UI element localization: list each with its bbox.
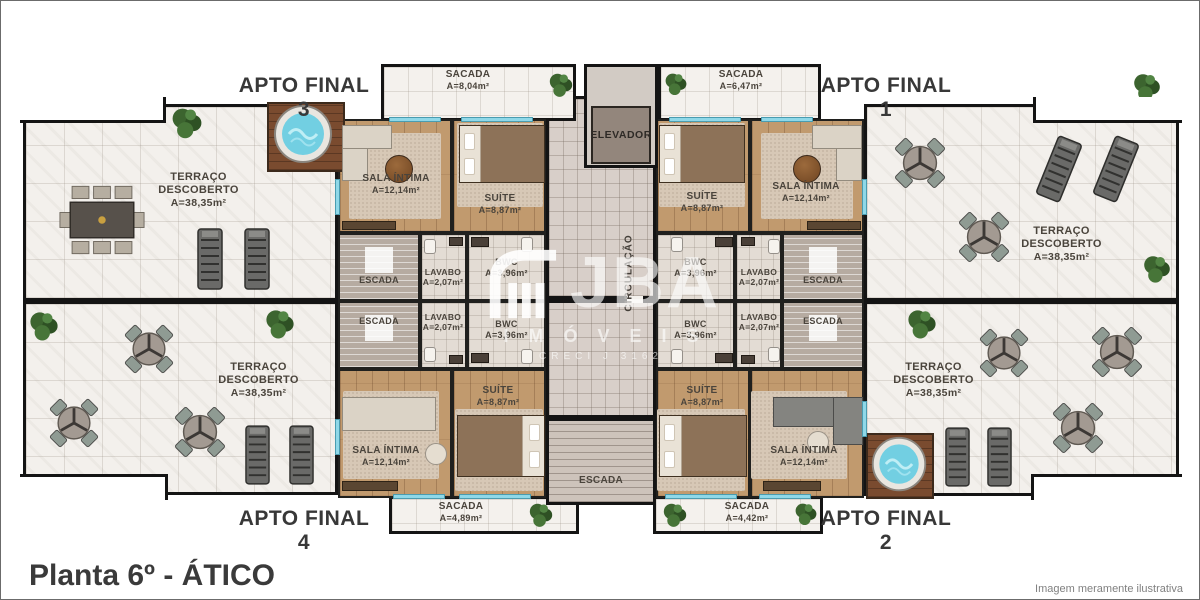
sacada-label-apto1: SACADAA=6,47m² <box>689 69 793 92</box>
terrace-step-apto4 <box>20 474 168 500</box>
window <box>761 117 813 122</box>
room-escada-apto2 <box>782 301 864 369</box>
vanity <box>715 353 733 363</box>
vanity <box>715 237 733 247</box>
central-stairs <box>546 418 656 505</box>
window <box>335 179 340 215</box>
disclaimer-text: Imagem meramente ilustrativa <box>1035 583 1183 595</box>
sofa <box>342 397 436 431</box>
plant <box>1141 253 1173 285</box>
bed <box>659 125 745 183</box>
sink <box>741 237 755 246</box>
terraco-label-apto4: TERRAÇO DESCOBERTOA=38,35m² <box>191 361 326 400</box>
suite-label-apto4: SUÍTEA=8,87m² <box>454 385 542 408</box>
terrace-step-apto3 <box>20 97 166 123</box>
lavabo-label-apto4: LAVABOA=2,07m² <box>412 312 474 332</box>
plant <box>527 501 555 529</box>
vanity <box>471 353 489 363</box>
elevator: ELEVADOR <box>591 106 651 164</box>
suite-label-apto1: SUÍTEA=8,87m² <box>658 191 746 214</box>
tv-console <box>763 481 821 491</box>
tv-console <box>342 481 398 491</box>
floor-plan-canvas: ELEVADOR CIRCULAÇÃO ESCADA <box>0 0 1200 600</box>
page-title: Planta 6º - ÁTICO <box>29 559 275 593</box>
toilet <box>521 349 533 364</box>
lounger <box>197 227 223 291</box>
bwc-label-apto2: BWCA=3,96m² <box>656 319 735 341</box>
window <box>335 419 340 455</box>
bed <box>457 415 545 477</box>
terrace-step-apto1 <box>1033 97 1182 123</box>
toilet <box>521 237 533 252</box>
bed <box>459 125 545 183</box>
terraco-label-apto3: TERRAÇO DESCOBERTOA=38,35m² <box>131 171 266 210</box>
apto3-label: APTO FINAL 3 <box>231 74 377 122</box>
apto2-label: APTO FINAL 2 <box>813 507 959 555</box>
plant <box>663 71 689 97</box>
tv-console <box>342 221 396 230</box>
sala-label-apto4: SALA ÍNTIMAA=12,14m² <box>336 445 436 468</box>
window <box>461 117 533 122</box>
bistro-table <box>1049 399 1107 457</box>
sacada-label-apto4: SACADAA=4,89m² <box>409 501 513 524</box>
lounger <box>289 423 314 487</box>
plant <box>27 309 61 343</box>
lavabo-label-apto3: LAVABOA=2,07m² <box>412 267 474 287</box>
lavabo-label-apto2: LAVABOA=2,07m² <box>728 312 790 332</box>
apto1-label: APTO FINAL 1 <box>813 74 959 122</box>
terraco-label-apto2: TERRAÇO DESCOBERTOA=38,35m² <box>866 361 1001 400</box>
terraco-label-apto1: TERRAÇO DESCOBERTOA=38,35m² <box>994 225 1129 264</box>
plant <box>263 307 297 341</box>
sacada-label-apto2: SACADAA=4,42m² <box>695 501 799 524</box>
sacada-label-apto3: SACADAA=8,04m² <box>416 69 520 92</box>
tv-console <box>807 221 861 230</box>
sink <box>449 355 463 364</box>
central-stairs-label: ESCADA <box>546 475 656 487</box>
plant <box>661 501 689 529</box>
lounger <box>987 425 1012 489</box>
toilet <box>671 237 683 252</box>
escada-label-apto4: ESCADA <box>338 316 420 327</box>
lounger <box>945 425 970 489</box>
toilet <box>424 239 436 254</box>
sala-label-apto2: SALA ÍNTIMAA=12,14m² <box>754 445 854 468</box>
toilet <box>768 347 780 362</box>
apto4-label: APTO FINAL 4 <box>231 507 377 555</box>
room-escada-apto3 <box>338 233 420 301</box>
suite-label-apto2: SUÍTEA=8,87m² <box>658 385 746 408</box>
escada-label-apto1: ESCADA <box>782 275 864 286</box>
sala-label-apto1: SALA ÍNTIMAA=12,14m² <box>756 181 856 204</box>
window <box>759 494 811 499</box>
bwc-label-apto4: BWCA=3,96m² <box>467 319 546 341</box>
bistro-table <box>46 395 102 451</box>
toilet <box>671 349 683 364</box>
escada-label-apto3: ESCADA <box>338 275 420 286</box>
sink <box>741 355 755 364</box>
bwc-label-apto3: BWCA=3,96m² <box>467 257 546 279</box>
toilet <box>768 239 780 254</box>
bistro-table <box>891 134 949 192</box>
bistro-table <box>171 403 229 461</box>
window <box>862 401 867 437</box>
sala-label-apto3: SALA ÍNTIMAA=12,14m² <box>346 173 446 196</box>
window <box>665 494 737 499</box>
hot-tub <box>869 435 929 493</box>
plant <box>905 307 939 341</box>
coffee-table <box>793 155 821 183</box>
lounger <box>245 423 270 487</box>
bistro-table <box>121 321 177 377</box>
sofa <box>342 125 392 149</box>
lounger <box>244 227 270 291</box>
bistro-table <box>1088 323 1146 381</box>
window <box>862 179 867 215</box>
window <box>393 494 445 499</box>
vanity <box>471 237 489 247</box>
plant <box>169 105 205 141</box>
sofa <box>833 397 863 445</box>
escada-label-apto2: ESCADA <box>782 316 864 327</box>
elevator-label: ELEVADOR <box>590 129 652 141</box>
bed <box>659 415 747 477</box>
terrace-step-apto2 <box>1031 474 1182 500</box>
window <box>669 117 741 122</box>
room-escada-apto4 <box>338 301 420 369</box>
toilet <box>424 347 436 362</box>
room-escada-apto1 <box>782 233 864 301</box>
bwc-label-apto1: BWCA=3,96m² <box>656 257 735 279</box>
window <box>459 494 531 499</box>
plant <box>547 71 575 99</box>
window <box>389 117 441 122</box>
suite-label-apto3: SUÍTEA=8,87m² <box>456 193 544 216</box>
lavabo-label-apto1: LAVABOA=2,07m² <box>728 267 790 287</box>
sofa <box>812 125 862 149</box>
circulation-label: CIRCULAÇÃO <box>624 234 635 311</box>
sink <box>449 237 463 246</box>
